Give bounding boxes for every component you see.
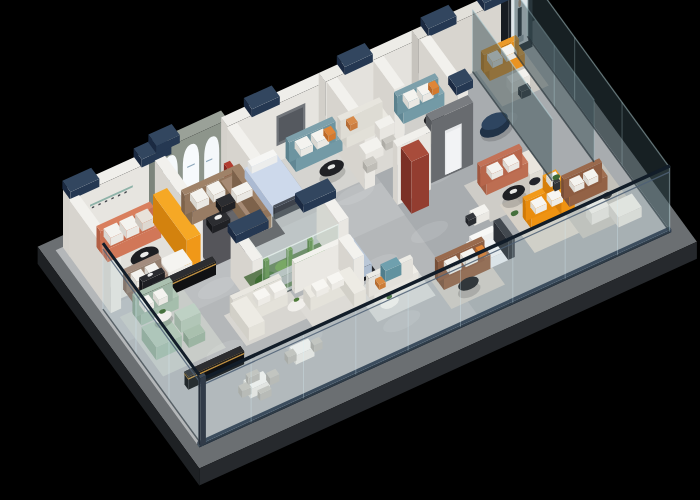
showroom-isometric-render: [0, 0, 700, 500]
showroom-screenshot: [0, 0, 700, 500]
back-wall-left-side: [63, 190, 70, 257]
red-j-sculpture-wall-front: [411, 154, 429, 214]
white-sofa-back-side: [366, 275, 369, 298]
feature-wall-door-decal: [446, 127, 460, 175]
feature-wall-door: [445, 123, 462, 175]
glass-corner-post-side: [198, 376, 200, 447]
curved-display-wall-side: [292, 260, 295, 294]
redj-backdrop-wall-side: [393, 141, 398, 205]
terracotta-sofa-back-side: [477, 163, 480, 187]
glass-corner-post-front: [200, 376, 206, 447]
right-brown-sofa-back-side: [561, 176, 564, 200]
